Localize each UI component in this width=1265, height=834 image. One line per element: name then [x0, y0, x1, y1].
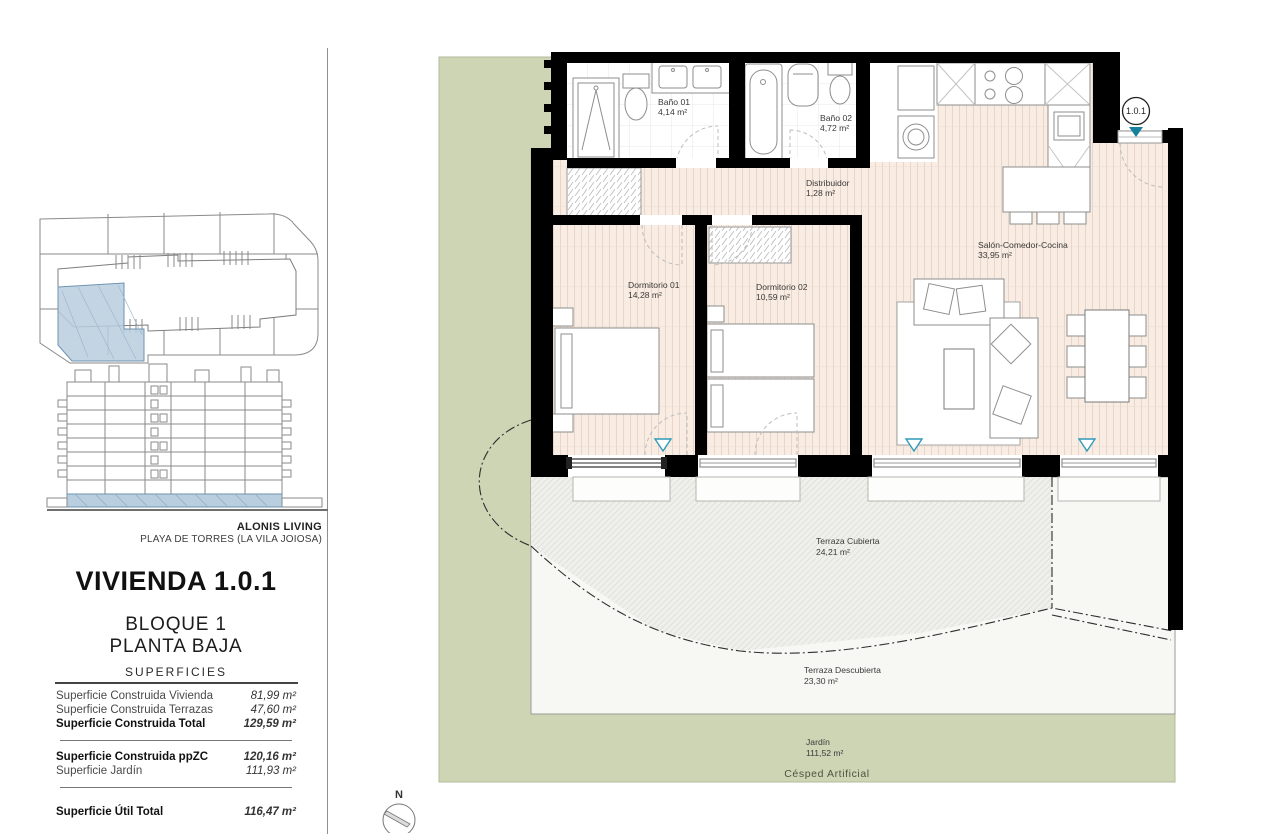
coffee-table: [944, 349, 974, 409]
brand-location: PLAYA DE TORRES (LA VILA JOIOSA): [30, 534, 322, 545]
table-row-total: Superficie Construida Total 129,59 m²: [56, 717, 296, 731]
toilet-bath2: [828, 62, 852, 104]
block-label: BLOQUE 1: [20, 614, 332, 636]
sink-bath2: [788, 64, 818, 106]
svg-text:10,59 m²: 10,59 m²: [756, 292, 790, 302]
row-value: 116,47 m²: [244, 805, 296, 819]
svg-text:24,21 m²: 24,21 m²: [816, 547, 850, 557]
north-compass: [376, 801, 422, 833]
room-label-bath1: Baño 01: [658, 97, 690, 107]
areas-table-rule: [55, 682, 298, 684]
areas-table-title: SUPERFICIES: [20, 665, 332, 679]
table-divider: [60, 787, 292, 788]
floor-label: PLANTA BAJA: [20, 636, 332, 658]
label-garden: Jardín: [806, 737, 830, 747]
areas-table: Superficie Construida Vivienda 81,99 m² …: [56, 689, 296, 819]
unit-tag-text: 1.0.1: [1126, 106, 1146, 116]
room-label-living: Salón-Comedor-Cocina: [978, 240, 1068, 250]
row-label: Superficie Construida ppZC: [56, 750, 208, 764]
row-value: 111,93 m²: [246, 764, 296, 778]
row-value: 129,59 m²: [244, 717, 296, 731]
table-row: Superficie Construida Terrazas 47,60 m²: [56, 703, 296, 717]
row-value: 81,99 m²: [251, 689, 296, 703]
svg-text:4,72 m²: 4,72 m²: [820, 123, 849, 133]
brand-block: ALONIS LIVING PLAYA DE TORRES (LA VILA J…: [30, 521, 322, 545]
toilet-bath1: [623, 74, 649, 120]
row-value: 47,60 m²: [251, 703, 296, 717]
room-label-bedroom1: Dormitorio 01: [628, 280, 680, 290]
svg-text:23,30 m²: 23,30 m²: [804, 676, 838, 686]
table-row-util-total: Superficie Útil Total 116,47 m²: [56, 805, 296, 819]
site-key-plan: [28, 199, 324, 367]
svg-text:1,28 m²: 1,28 m²: [806, 188, 835, 198]
floor-plan: 1.0.1 Baño 01 4,14 m² Baño 02 4,72 m² Di…: [437, 50, 1183, 784]
label-open-terrace: Terraza Descubierta: [804, 665, 881, 675]
kitchen-island: [1003, 167, 1090, 224]
elevation-ground-floor-highlight: [47, 494, 322, 507]
row-label: Superficie Construida Total: [56, 717, 205, 731]
shower-bath1: [573, 78, 619, 162]
double-sink-bath1: [652, 62, 730, 93]
row-label: Superficie Construida Terrazas: [56, 703, 213, 717]
table-row: Superficie Construida Vivienda 81,99 m²: [56, 689, 296, 703]
label-artificial-grass: Césped Artificial: [784, 768, 869, 780]
row-label: Superficie Útil Total: [56, 805, 163, 819]
room-label-bedroom2: Dormitorio 02: [756, 282, 808, 292]
table-row: Superficie Jardín 111,93 m²: [56, 764, 296, 778]
room-label-bath2: Baño 02: [820, 113, 852, 123]
beds-bedroom2: [707, 306, 814, 432]
north-label: N: [376, 789, 422, 801]
building-elevation: [45, 362, 330, 517]
bathtub-bath2: [745, 64, 782, 160]
table-divider: [60, 740, 292, 741]
wardrobe-bedroom1: [567, 168, 641, 216]
svg-text:14,28 m²: 14,28 m²: [628, 290, 662, 300]
unit-title: VIVIENDA 1.0.1: [20, 566, 332, 597]
svg-text:33,95 m²: 33,95 m²: [978, 250, 1012, 260]
entrance: 1.0.1: [1118, 98, 1162, 144]
north-arrow: N: [376, 789, 422, 834]
brand-name: ALONIS LIVING: [30, 521, 322, 533]
row-label: Superficie Construida Vivienda: [56, 689, 213, 703]
row-value: 120,16 m²: [244, 750, 296, 764]
svg-text:111,52 m²: 111,52 m²: [806, 748, 844, 758]
floorplan-sheet: ALONIS LIVING PLAYA DE TORRES (LA VILA J…: [0, 0, 1265, 834]
wardrobe-bedroom2: [709, 227, 791, 263]
dining-set: [1067, 310, 1146, 402]
row-label: Superficie Jardín: [56, 764, 142, 778]
room-label-hall: Distribuidor: [806, 178, 850, 188]
svg-text:4,14 m²: 4,14 m²: [658, 107, 687, 117]
label-covered-terrace: Terraza Cubierta: [816, 536, 880, 546]
table-row: Superficie Construida ppZC 120,16 m²: [56, 750, 296, 764]
